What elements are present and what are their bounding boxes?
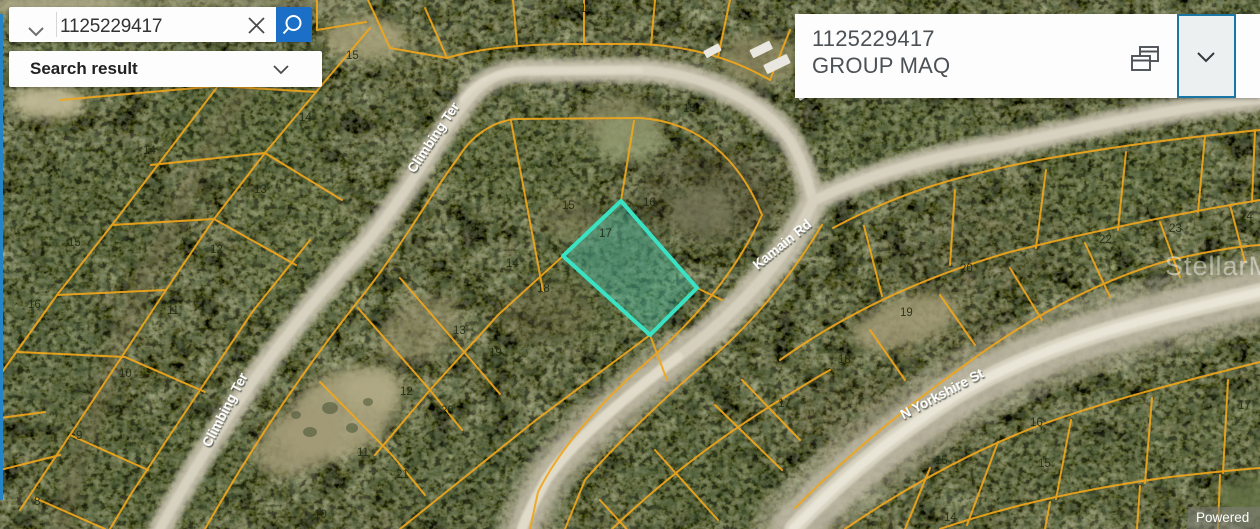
svg-text:22: 22: [1099, 234, 1112, 246]
svg-text:14: 14: [580, 3, 593, 15]
svg-text:StellarMLS: StellarMLS: [1165, 251, 1260, 281]
svg-text:17: 17: [1238, 400, 1251, 412]
svg-text:16: 16: [28, 299, 41, 311]
svg-text:19: 19: [489, 347, 502, 359]
svg-text:14: 14: [143, 145, 156, 157]
svg-text:14: 14: [944, 512, 957, 524]
svg-text:24: 24: [1240, 211, 1253, 223]
svg-text:1125229417: 1125229417: [60, 16, 162, 37]
svg-text:20: 20: [441, 405, 454, 417]
svg-text:12: 12: [400, 386, 413, 398]
svg-text:21: 21: [396, 469, 409, 481]
svg-text:10: 10: [314, 509, 327, 521]
svg-text:11: 11: [167, 305, 179, 317]
svg-text:17: 17: [599, 228, 612, 240]
svg-text:17: 17: [778, 398, 791, 410]
svg-text:18: 18: [838, 354, 851, 366]
svg-text:14: 14: [506, 258, 519, 270]
svg-text:15: 15: [562, 200, 575, 212]
svg-text:15: 15: [68, 237, 81, 249]
svg-text:15: 15: [935, 455, 948, 467]
svg-text:20: 20: [960, 263, 973, 275]
svg-text:15: 15: [683, 103, 696, 115]
svg-text:14: 14: [299, 112, 312, 124]
svg-text:13: 13: [453, 325, 466, 337]
svg-text:12: 12: [210, 244, 223, 256]
svg-text:23: 23: [1169, 223, 1182, 235]
svg-text:15: 15: [1038, 458, 1051, 470]
svg-text:13: 13: [254, 184, 267, 196]
svg-text:18: 18: [537, 283, 550, 295]
svg-text:9: 9: [76, 430, 82, 442]
svg-text:16: 16: [643, 197, 656, 209]
svg-text:8: 8: [34, 496, 40, 508]
svg-text:19: 19: [900, 307, 913, 319]
svg-text:16: 16: [1030, 417, 1043, 429]
svg-text:15: 15: [346, 50, 359, 62]
svg-text:10: 10: [119, 368, 132, 380]
svg-text:11: 11: [357, 447, 369, 459]
